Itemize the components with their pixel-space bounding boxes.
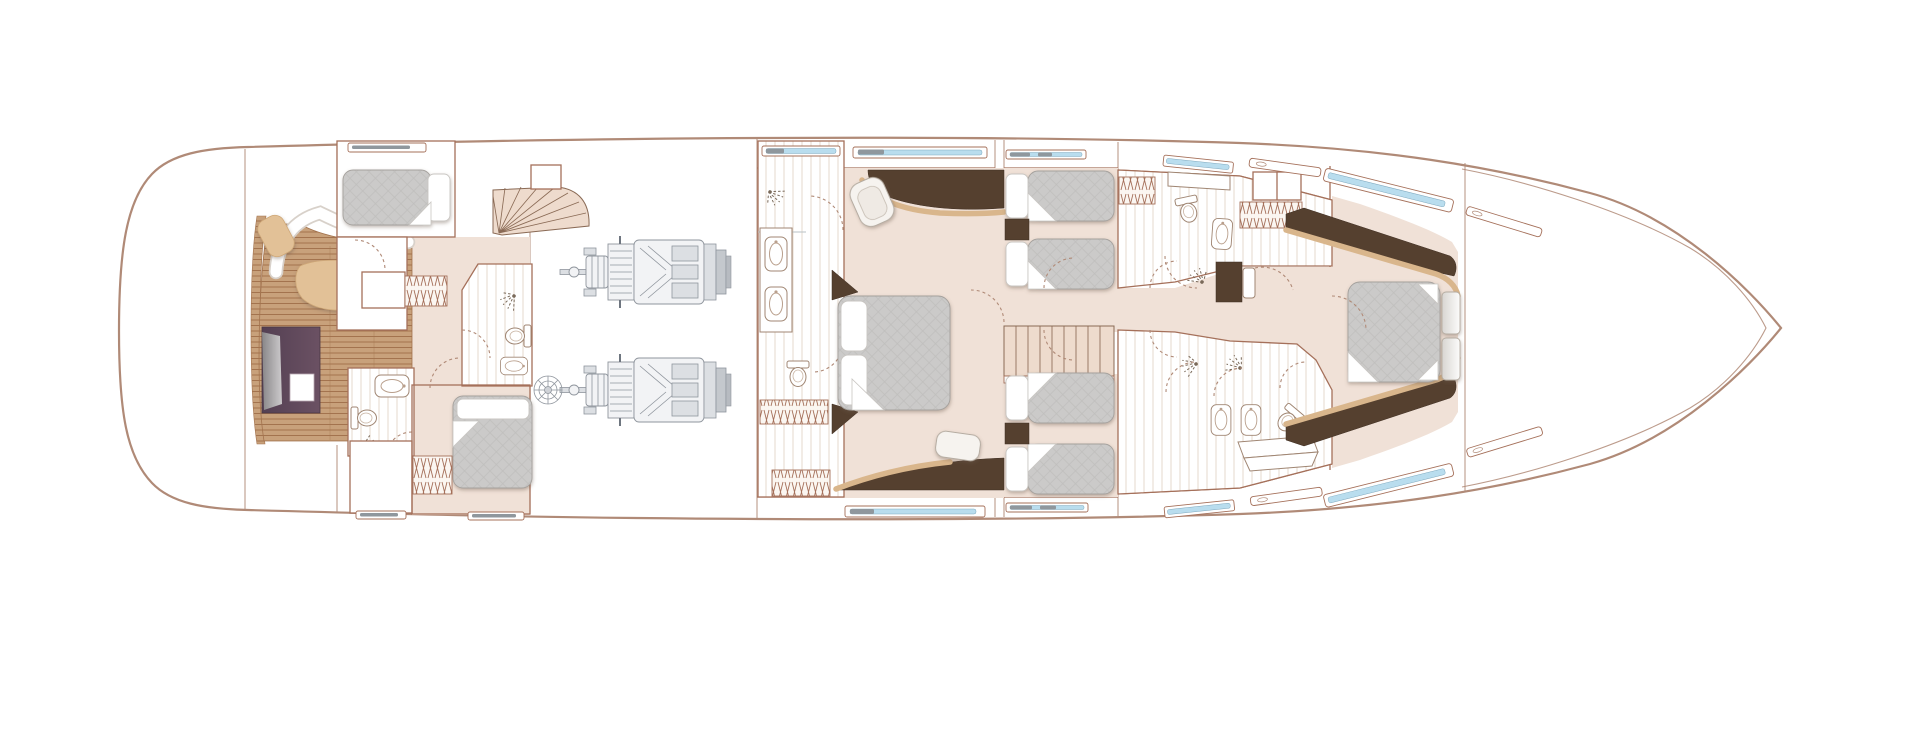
stair-landing <box>531 165 561 189</box>
crew-wardrobe-hatch-b <box>413 456 452 494</box>
sink-icon <box>500 357 527 375</box>
master-wardrobe-hatch-a <box>760 400 828 424</box>
sink-icon <box>1211 218 1233 250</box>
hull-window-icon <box>1006 150 1086 159</box>
pillow <box>457 399 529 419</box>
sink-icon <box>1241 405 1261 436</box>
master-bathroom <box>758 141 844 497</box>
pillow <box>1006 376 1028 420</box>
crew-head <box>462 264 532 386</box>
sink-icon <box>375 375 409 397</box>
pillow <box>1006 174 1028 218</box>
yacht-lower-deck-plan <box>0 0 1920 732</box>
master-wardrobe-hatch-b <box>772 470 830 496</box>
vanity-cabinet <box>1216 262 1242 302</box>
headboard-panel <box>1442 292 1460 334</box>
nightstand <box>1005 423 1029 444</box>
floor-plan-canvas <box>0 0 1920 732</box>
pillow <box>841 301 867 351</box>
pillow <box>1006 242 1028 286</box>
headboard-panel <box>1442 338 1460 380</box>
nightstand <box>1005 219 1029 240</box>
guest-bathroom-starboard <box>1118 330 1332 494</box>
hull-window-icon <box>853 147 987 158</box>
hull-window-icon <box>845 506 985 517</box>
aft-lobby <box>350 441 412 513</box>
hull-window-icon <box>1006 503 1088 512</box>
tender-garage-steps <box>262 327 320 413</box>
crew-bed-port <box>343 170 450 225</box>
shaft-gear-icon <box>534 376 562 404</box>
hull-window-icon <box>348 143 426 152</box>
hull-window-icon <box>762 146 840 156</box>
sink-icon <box>1211 405 1231 436</box>
sink-icon <box>765 287 787 321</box>
master-double-bed <box>838 296 950 410</box>
crew-wardrobe-hatch-a <box>405 276 447 306</box>
crew-store-shelf <box>362 272 405 308</box>
hull-window-icon <box>468 512 524 520</box>
pillow <box>1006 447 1028 491</box>
garage-locker <box>290 374 314 401</box>
cabinet-slab <box>1243 268 1255 298</box>
sink-icon <box>765 237 787 271</box>
hull-window-icon <box>356 511 406 519</box>
wardrobe-hatch <box>1119 177 1155 204</box>
vip-double-bed <box>1348 282 1460 382</box>
